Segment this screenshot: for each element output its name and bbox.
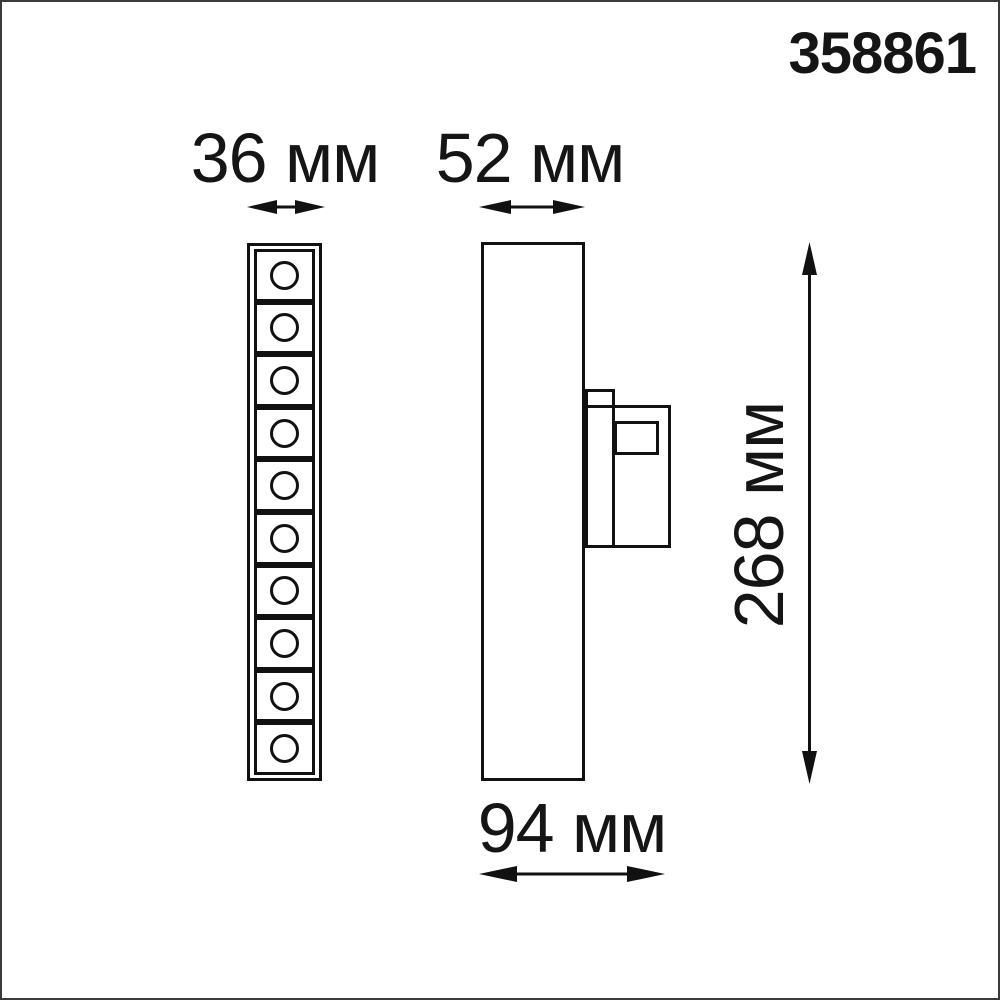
track-adapter-divider [612,389,615,548]
front-view-body [247,243,322,781]
led-cell [254,617,315,670]
led-cell [254,302,315,355]
side-width-label: 52 мм [397,118,663,198]
track-adapter-latch [614,421,659,455]
led-column [254,249,315,775]
led-lens-circle [270,261,299,290]
led-lens-circle [270,682,299,711]
led-lens-circle [270,419,299,448]
height-label: 268 мм [724,375,794,655]
led-cell [254,722,315,775]
led-cell [254,459,315,512]
product-code: 358861 [788,20,976,87]
led-cell [254,407,315,460]
led-lens-circle [270,734,299,763]
led-cell [254,249,315,302]
dimension-drawing: 358861 36 мм 52 мм 268 мм 94 мм [0,0,1000,1000]
front-width-arrow [247,198,325,216]
led-cell [254,565,315,618]
height-arrow [800,242,819,784]
led-lens-circle [270,366,299,395]
led-lens-circle [270,524,299,553]
led-lens-circle [270,576,299,605]
front-width-label: 36 мм [152,118,418,198]
led-cell [254,670,315,723]
side-view-body [481,242,585,781]
led-cell [254,354,315,407]
led-lens-circle [270,313,299,342]
depth-arrow [479,864,665,884]
depth-label: 94 мм [439,788,705,868]
led-lens-circle [270,471,299,500]
side-width-arrow [479,198,585,216]
led-lens-circle [270,629,299,658]
led-cell [254,512,315,565]
